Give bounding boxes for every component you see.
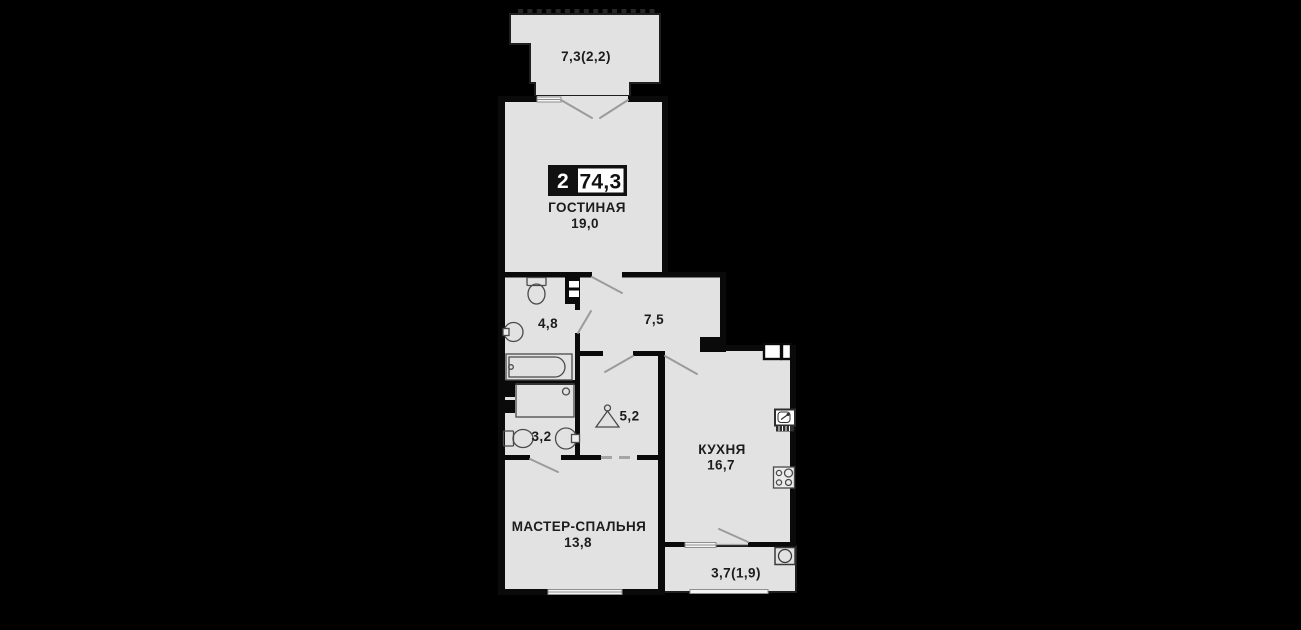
- vent-box-kitchen-2: [782, 344, 791, 359]
- balcony-bottom-area-label: 3,7(1,9): [711, 566, 761, 581]
- wc-shaft-b: [505, 400, 515, 413]
- wall-kitchen-right: [790, 345, 796, 547]
- kitchen-sink-icon: [775, 410, 795, 432]
- wall-wardrobe-top-left: [578, 351, 603, 356]
- vent-shaft-slot-2: [569, 291, 579, 298]
- kitchen-area-label: 16,7: [707, 458, 735, 473]
- room-wardrobe-floor: [578, 351, 664, 459]
- bathroom-area-label: 4,8: [538, 316, 558, 331]
- wall-kitchen-bottom-right: [748, 542, 790, 547]
- wall-living-top-left: [498, 96, 537, 102]
- vent-shaft-slot-1: [569, 281, 579, 288]
- wall-bedroom-top-b: [561, 455, 601, 460]
- stove-icon: [774, 467, 795, 488]
- wall-kitchen-bottom-left: [658, 542, 685, 547]
- wall-kitchen-top: [725, 345, 765, 351]
- badge-total-area: 74,3: [579, 171, 621, 194]
- wc-shaft-a: [505, 384, 515, 397]
- wall-bedroom-bottom-right: [622, 589, 662, 595]
- living-room-area-label: 19,0: [571, 216, 599, 231]
- kitchen-name-label: КУХНЯ: [698, 442, 745, 457]
- wall-outer-left: [498, 96, 505, 595]
- wall-living-bottom-right: [622, 272, 726, 278]
- master-bedroom-area-label: 13,8: [564, 535, 592, 550]
- balcony-top-area-label: 7,3(2,2): [561, 49, 611, 64]
- vent-shaft-bathroom: [565, 275, 580, 304]
- living-room-name-label: ГОСТИНАЯ: [548, 200, 626, 215]
- balcony-sink-icon: [775, 548, 795, 565]
- wall-hall-right: [720, 272, 726, 341]
- wall-hall-kitchen-block: [700, 337, 726, 352]
- window-balcony-bottom: [690, 590, 768, 594]
- wardrobe-area-label: 5,2: [620, 409, 640, 424]
- floorplan-drawing: 2 74,3 7,3(2,2) ГОСТИНАЯ 19,0 4,8 7,5 5,…: [0, 0, 1301, 630]
- wall-bedroom-top-a: [498, 455, 530, 460]
- wall-bedroom-bottom-left: [498, 589, 548, 595]
- master-bedroom-name-label: МАСТЕР-СПАЛЬНЯ: [512, 519, 646, 534]
- floorplan-canvas: 2 74,3 7,3(2,2) ГОСТИНАЯ 19,0 4,8 7,5 5,…: [0, 0, 1301, 630]
- wall-bedroom-top-c: [637, 455, 664, 460]
- vent-box-kitchen-1: [764, 344, 781, 359]
- wc-area-label: 3,2: [532, 429, 552, 444]
- apartment-badge: 2 74,3: [548, 165, 627, 196]
- badge-rooms-count: 2: [557, 170, 569, 193]
- wall-kitchen-divider: [658, 351, 665, 595]
- hall-area-label: 7,5: [644, 312, 664, 327]
- wall-living-right: [662, 96, 668, 277]
